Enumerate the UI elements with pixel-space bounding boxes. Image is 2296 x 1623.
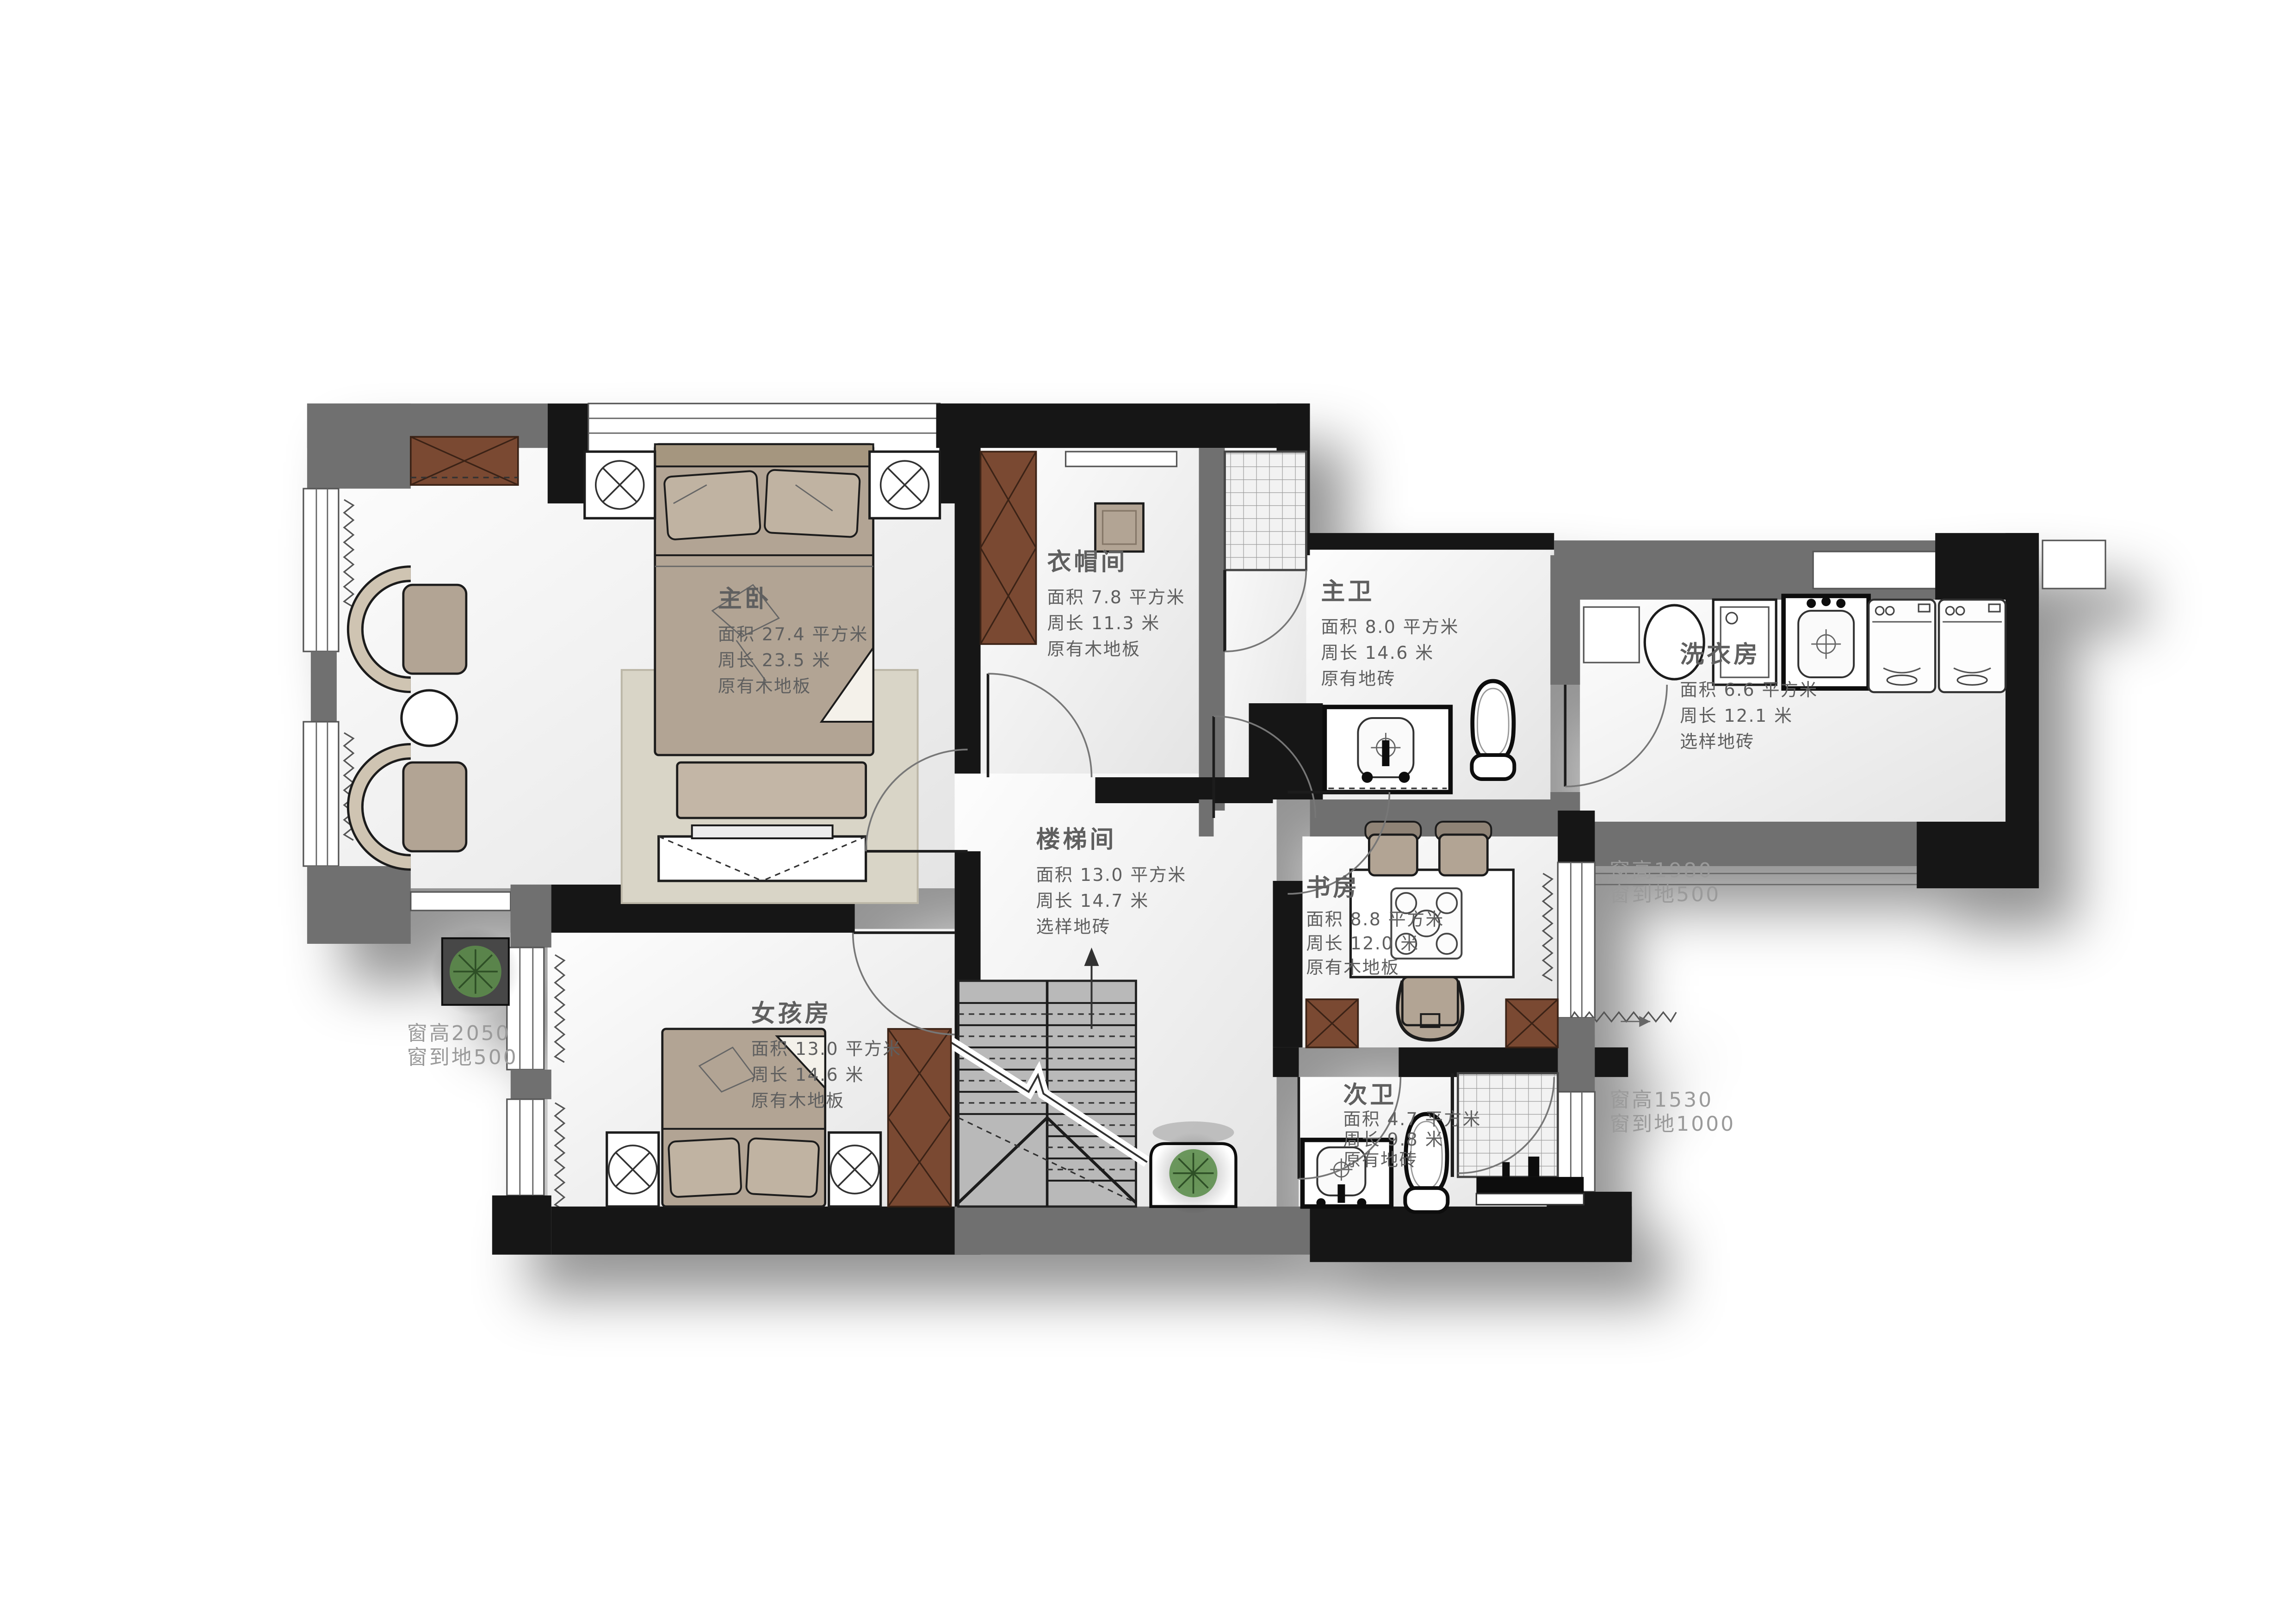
wall-pier-study-ne (1558, 811, 1595, 862)
wall-master-hall-upper (955, 448, 981, 774)
toilet-master-icon (1472, 681, 1514, 779)
wardrobe-master-icon (411, 437, 518, 485)
room-perimeter: 周长 14.6 米 (1321, 643, 1434, 663)
bed-bench-icon (677, 762, 866, 818)
room-floor: 选样地砖 (1036, 917, 1111, 937)
svg-text:窗高1530: 窗高1530 (1609, 1088, 1713, 1112)
nightstand-left-icon (585, 452, 655, 518)
svg-text:窗高1980: 窗高1980 (1609, 859, 1713, 882)
side-table-icon (402, 690, 457, 746)
wall-top-center-black (936, 403, 1310, 448)
room-title: 女孩房 (751, 1000, 832, 1028)
wall-bath-laundry-a (1550, 555, 1580, 685)
staircase-icon (947, 948, 1147, 1207)
nightstand-girl-right-icon (829, 1133, 881, 1207)
room-title: 主卧 (718, 585, 772, 613)
wall-bath-bottom-a (1199, 799, 1213, 836)
wall-girl-left-b (511, 1070, 551, 1099)
wall-corner-laundry-br (1917, 822, 2039, 888)
room-floor: 原有地砖 (1321, 669, 1396, 689)
study-cabinet-left-icon (1306, 999, 1358, 1047)
sill-left (411, 892, 511, 911)
plant-console-icon (1151, 1121, 1236, 1214)
room-area: 面积 8.0 平方米 (1321, 617, 1459, 637)
wall-pier-bed-left (548, 403, 588, 503)
svg-text:窗高2050: 窗高2050 (407, 1022, 511, 1045)
room-title: 书房 (1306, 874, 1360, 902)
room-floor: 原有木地板 (1047, 639, 1141, 659)
room-perimeter: 周长 12.0 米 (1306, 933, 1419, 954)
note-bottom-right-window: 窗高1530 窗到地1000 (1609, 1088, 1735, 1136)
room-floor: 原有木地板 (718, 676, 811, 696)
wall-corner-girl-bl (492, 1196, 551, 1255)
room-floor: 原有地砖 (1343, 1150, 1418, 1170)
room-area: 面积 6.6 平方米 (1680, 680, 1818, 700)
room-title: 洗衣房 (1680, 641, 1760, 669)
room-floor: 原有木地板 (751, 1090, 845, 1111)
building-plan: 主卧 面积 27.4 平方米 周长 23.5 米 原有木地板 衣帽间 面积 7.… (303, 403, 2105, 1262)
wardrobe-closet-icon (981, 452, 1036, 644)
room-title: 主卫 (1321, 578, 1374, 606)
wall-left-a (311, 448, 337, 489)
exterior-unit (2042, 540, 2105, 588)
wall-girl-bottom (551, 1207, 955, 1255)
closet-ottoman-icon (1095, 503, 1144, 551)
room-area: 面积 13.0 平方米 (751, 1039, 902, 1059)
study-cabinet-right-icon (1506, 999, 1558, 1047)
study-chair-bottom-icon (1398, 977, 1463, 1040)
room-perimeter: 周长 11.3 米 (1047, 613, 1160, 633)
room-title: 次卫 (1343, 1081, 1397, 1109)
window-bath2-east (1558, 1092, 1595, 1192)
plant-master-icon (431, 927, 520, 1016)
nightstand-right-icon (870, 452, 940, 518)
nightstand-girl-left-icon (607, 1133, 659, 1207)
room-perimeter: 周长 12.1 米 (1680, 706, 1793, 726)
wall-bath-top (1306, 533, 1554, 550)
study-chair-top2-icon (1436, 822, 1491, 875)
closet-shelf (1066, 452, 1177, 466)
svg-text:窗到地500: 窗到地500 (1609, 883, 1720, 906)
note-right-mid-window: 窗高1980 窗到地500 (1609, 859, 1720, 906)
vanity-master-icon (1324, 707, 1450, 792)
room-floor: 原有木地板 (1306, 957, 1399, 978)
wall-left-pier (311, 651, 337, 722)
room-area: 面积 7.8 平方米 (1047, 587, 1185, 607)
room-perimeter: 周长 14.7 米 (1036, 891, 1149, 911)
wall-east-pier (1558, 1018, 1595, 1092)
wall-closet-bath (1199, 448, 1225, 811)
svg-text:窗到地500: 窗到地500 (407, 1046, 518, 1069)
wall-bath2-top-a (1273, 1047, 1299, 1077)
wall-hall-study-b (1273, 881, 1302, 1047)
wall-hall-bottom (955, 1207, 1310, 1255)
room-title: 楼梯间 (1036, 826, 1117, 854)
wall-corner-bl-master (307, 866, 411, 944)
room-perimeter: 周长 23.5 米 (718, 650, 831, 670)
room-perimeter: 周长 9.8 米 (1343, 1129, 1444, 1150)
room-area: 面积 27.4 平方米 (718, 624, 868, 644)
room-floor: 选样地砖 (1680, 731, 1755, 752)
washer-2-icon (1939, 600, 2005, 692)
room-area: 面积 8.8 平方米 (1306, 909, 1444, 929)
wall-closet-hall (1095, 777, 1273, 803)
room-perimeter: 周长 14.6 米 (751, 1065, 864, 1085)
room-title: 衣帽间 (1047, 548, 1128, 576)
room-area: 面积 13.0 平方米 (1036, 865, 1187, 885)
laundry-box-icon (1584, 607, 1639, 663)
svg-text:窗到地1000: 窗到地1000 (1609, 1112, 1735, 1136)
washer-1-icon (1869, 600, 1935, 692)
wall-hall-study-a (1273, 777, 1302, 792)
laundry-sink-icon (1783, 596, 1869, 688)
wall-girl-left-a (511, 885, 551, 948)
room-area: 面积 4.7 平方米 (1343, 1109, 1481, 1129)
study-chair-top1-icon (1365, 822, 1421, 875)
note-left-window: 窗高2050 窗到地500 (407, 1022, 518, 1069)
floor-plan-canvas: 主卧 面积 27.4 平方米 周长 23.5 米 原有木地板 衣帽间 面积 7.… (0, 0, 2296, 1623)
